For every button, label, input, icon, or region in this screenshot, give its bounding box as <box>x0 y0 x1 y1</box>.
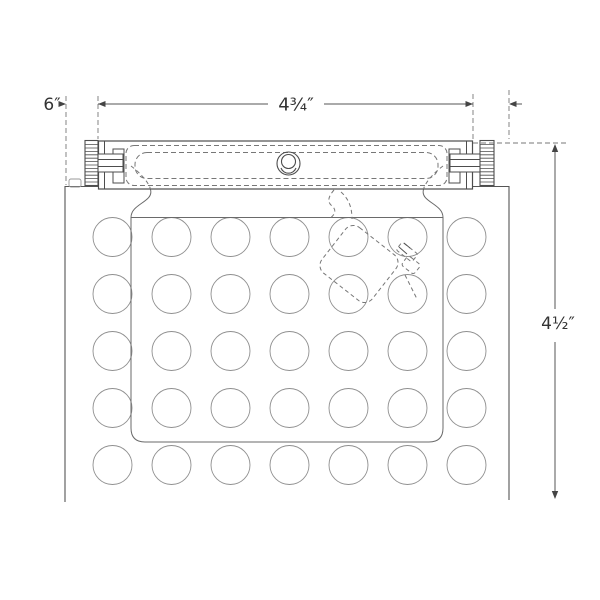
panel-dot <box>93 446 132 485</box>
panel-dot <box>447 275 486 314</box>
arrow-height-top <box>552 144 558 152</box>
panel-dot <box>388 275 427 314</box>
arrow-bar-left <box>98 101 106 107</box>
panel-dot <box>211 332 250 371</box>
wall-right-edge <box>472 187 509 501</box>
arrow-bar-right <box>466 101 474 107</box>
panel-dot <box>93 332 132 371</box>
overall-height-label: 4½″ <box>541 314 575 334</box>
hanger-hook-wire <box>329 190 335 219</box>
panel-dot <box>152 218 191 257</box>
panel-dot <box>388 332 427 371</box>
right-screw-shaft <box>450 154 480 172</box>
panel-dot <box>93 389 132 428</box>
mounting-bar <box>69 141 494 190</box>
bar-width-label: 4¾″ <box>278 95 314 116</box>
arrow-height-bottom <box>552 491 558 499</box>
panel-dot <box>211 446 250 485</box>
backplate-outline <box>131 190 443 443</box>
panel-dot <box>447 218 486 257</box>
panel-dot <box>211 218 250 257</box>
panel-dot <box>329 218 368 257</box>
panel-dot <box>270 275 309 314</box>
backplate <box>131 190 443 443</box>
panel-dot <box>388 389 427 428</box>
arrow-overall-right <box>509 101 517 107</box>
panel-dot <box>447 332 486 371</box>
technical-drawing: 6″ 4¾″ 4½″ <box>0 0 600 600</box>
panel-dot <box>329 389 368 428</box>
panel-dot <box>152 332 191 371</box>
panel-dot <box>211 275 250 314</box>
panel-dot <box>270 446 309 485</box>
panel-dot <box>388 446 427 485</box>
left-screw-shaft <box>97 154 123 172</box>
panel-dot <box>329 446 368 485</box>
left-clamp-foot <box>69 179 81 187</box>
panel-dot <box>329 275 368 314</box>
panel-dot <box>270 389 309 428</box>
hanger-tail <box>405 275 417 299</box>
panel-dot <box>93 275 132 314</box>
panel-dot <box>329 332 368 371</box>
panel-dot <box>152 389 191 428</box>
panel-dot <box>152 446 191 485</box>
dot-grid <box>93 218 486 485</box>
hanger-clip-small-2 <box>401 255 421 274</box>
panel-dot <box>388 218 427 257</box>
panel-dot <box>152 275 191 314</box>
panel-dot <box>447 446 486 485</box>
panel-dot <box>270 218 309 257</box>
panel-dot <box>211 389 250 428</box>
bar-body <box>99 141 473 189</box>
overall-width-label: 6″ <box>43 95 60 115</box>
panel-dot <box>93 218 132 257</box>
panel-dot <box>270 332 309 371</box>
panel-dot <box>447 389 486 428</box>
hanger-hook-wire-2 <box>341 192 352 219</box>
diagram-canvas: 6″ 4¾″ 4½″ <box>0 0 600 600</box>
hidden-hanger-clip <box>316 190 421 307</box>
